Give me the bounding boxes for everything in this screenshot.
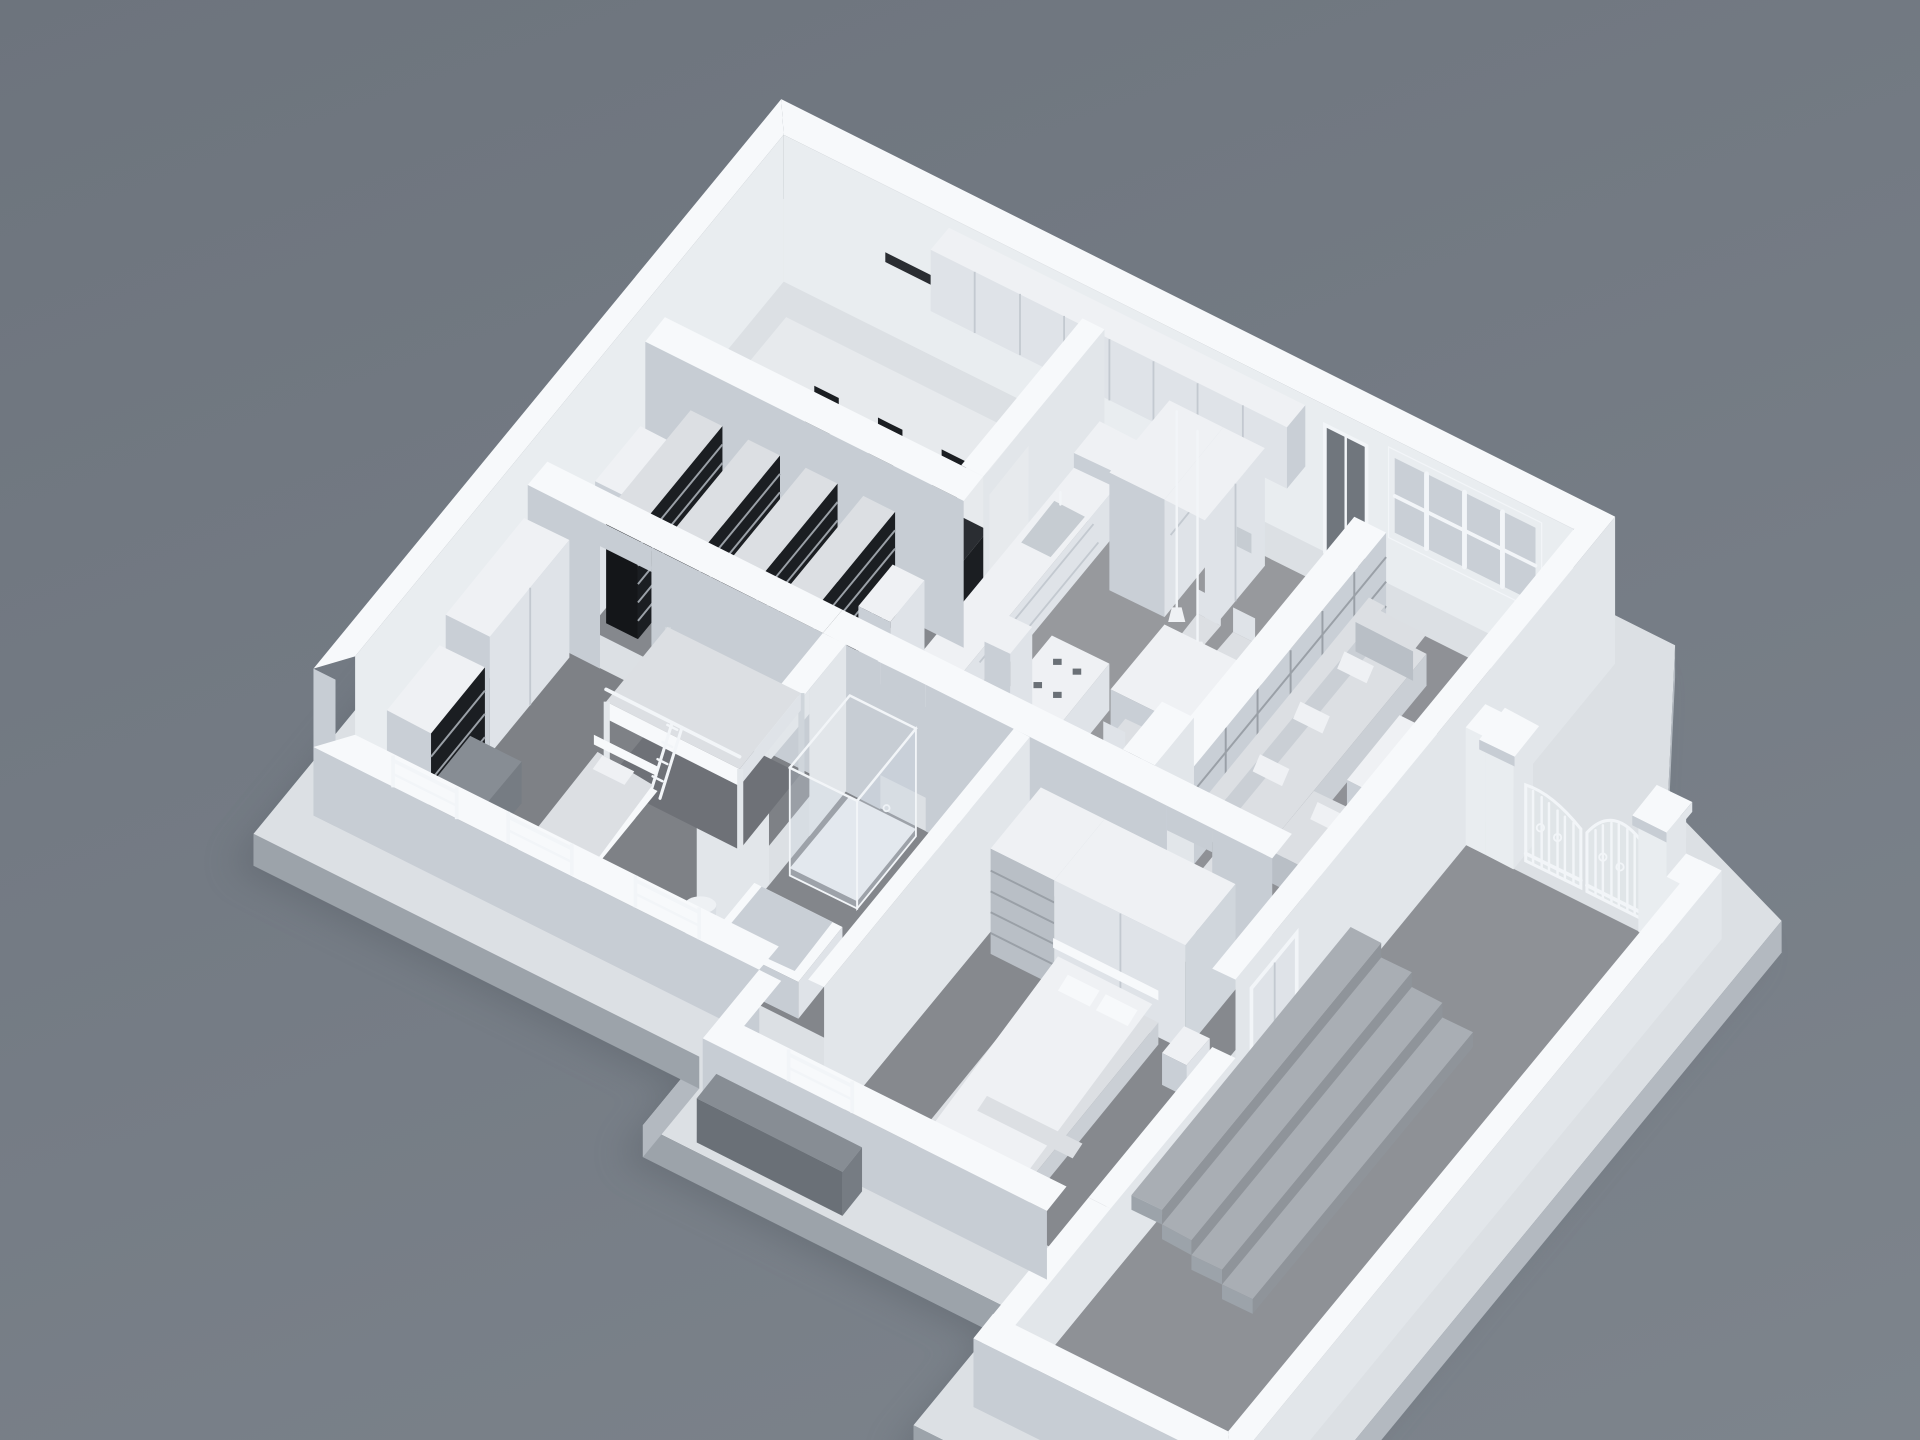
floor-plan-3d-render [0,0,1920,1440]
